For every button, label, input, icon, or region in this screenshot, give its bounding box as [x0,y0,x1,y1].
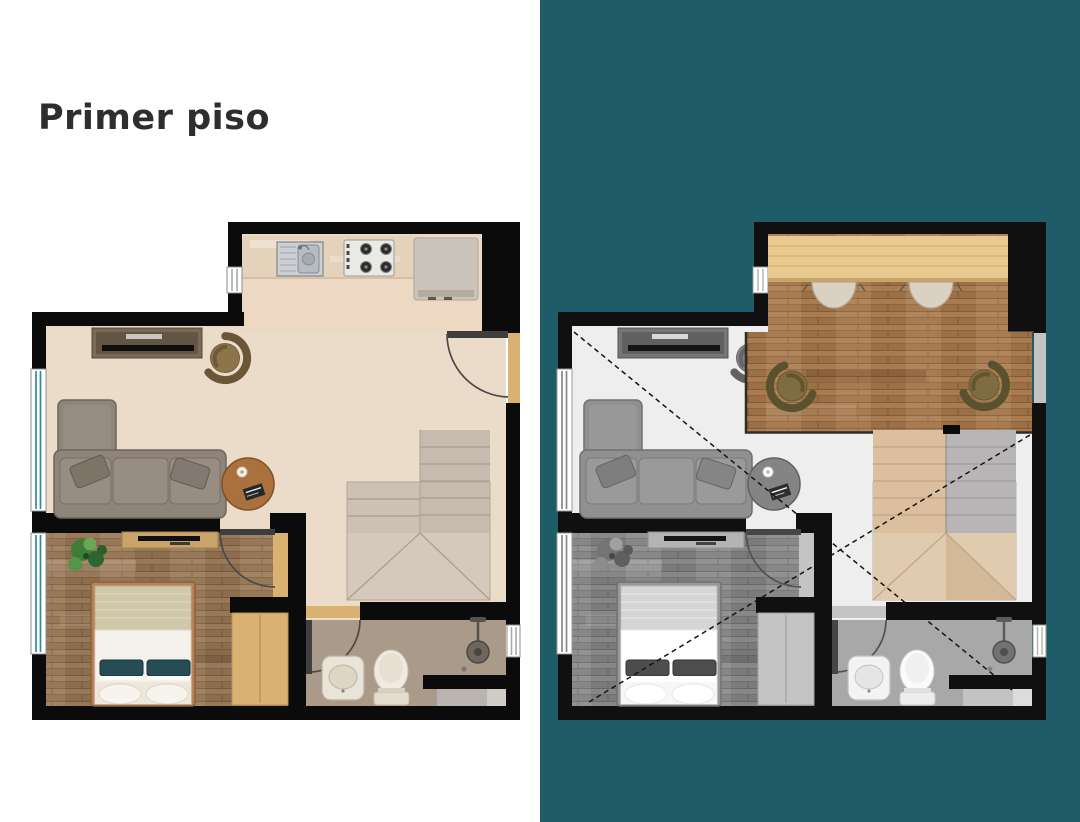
first-floor-plan-image [30,220,530,720]
page: Primer piso Segundo piso [0,0,1080,822]
study-room [746,234,1032,433]
first-floor-title: Primer piso [38,98,270,138]
stairs-second-floor [873,425,1016,600]
desk-icon [768,236,1008,282]
second-floor-plan-image [556,220,1056,720]
